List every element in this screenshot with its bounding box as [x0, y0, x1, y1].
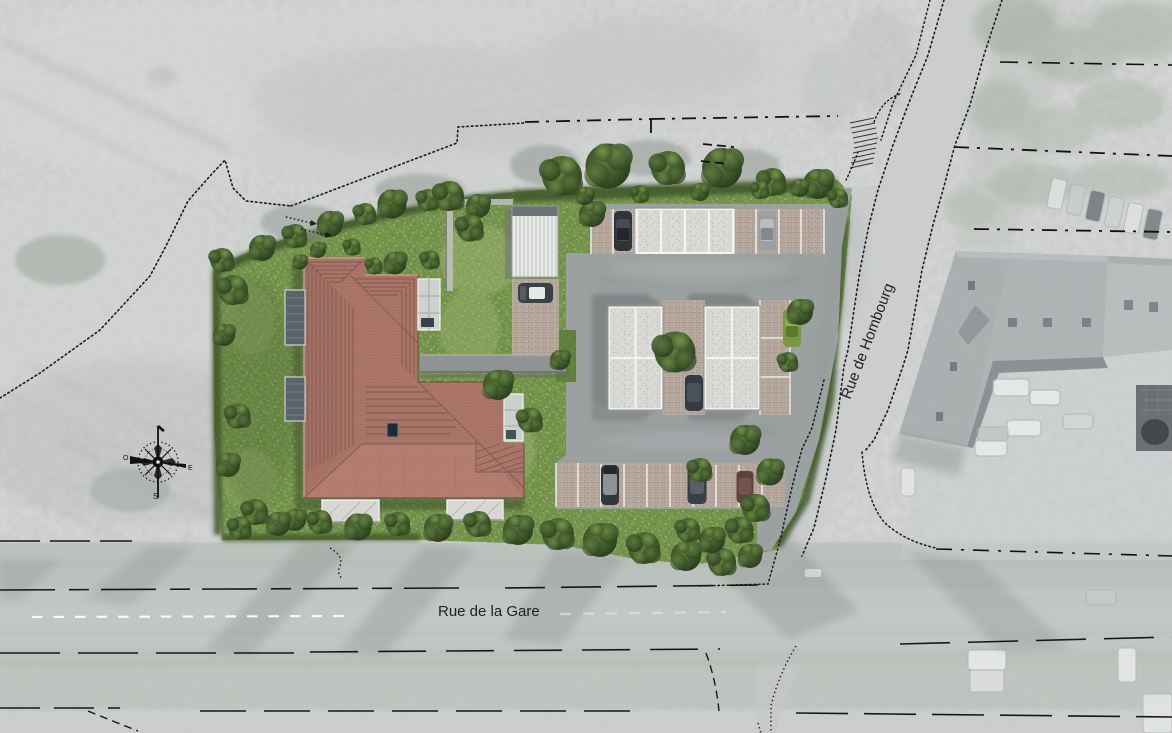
svg-text:O: O [123, 455, 129, 462]
svg-text:E: E [188, 465, 193, 472]
svg-text:S: S [153, 492, 158, 501]
svg-text:Rue de la Gare: Rue de la Gare [438, 603, 540, 620]
